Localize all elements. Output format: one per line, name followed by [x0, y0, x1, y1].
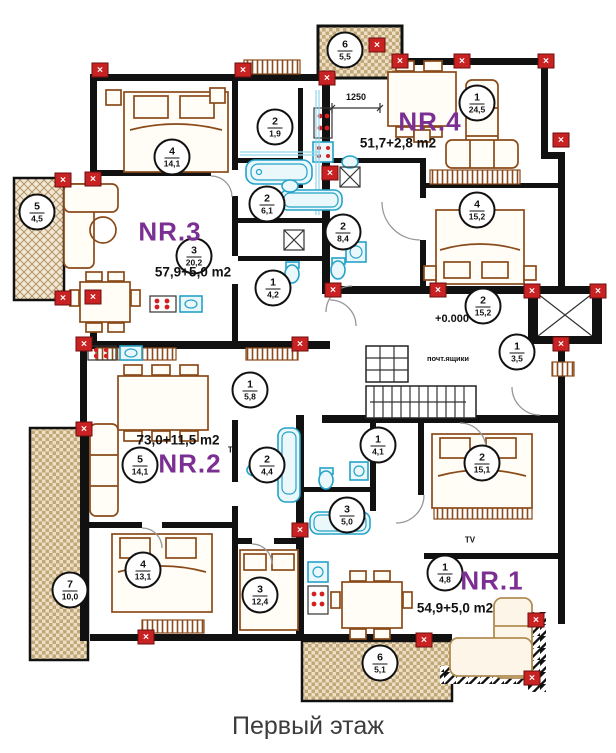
- room-area: 6,1: [261, 205, 273, 215]
- room-number: 1: [265, 276, 281, 289]
- apartment-label-nr2: NR.2: [158, 449, 221, 480]
- wall-marker-icon: ✕: [430, 283, 447, 298]
- dimension-label: 1250: [346, 92, 366, 102]
- dining-nr3: [70, 272, 140, 332]
- apartment-label-nr4: NR.4: [398, 107, 461, 138]
- apartment-label-nr1: NR.1: [460, 566, 523, 597]
- floor-caption: Первый этаж: [0, 712, 616, 741]
- room-area: 14,1: [164, 158, 181, 168]
- wall-marker-icon: ✕: [392, 54, 409, 69]
- room-area: 8,4: [337, 233, 349, 243]
- room-area: 4,4: [261, 466, 273, 476]
- room-marker: 14,1: [360, 427, 397, 464]
- floor-plan-page: 1250 +0.000 почт.ящики NR.3 57,9+5,0 m2 …: [0, 0, 616, 753]
- room-area: 15,1: [474, 464, 491, 474]
- wall-marker-icon: ✕: [590, 284, 607, 299]
- room-marker: 14,8: [427, 555, 464, 592]
- room-marker: 14,2: [255, 270, 292, 307]
- apartment-area-nr3: 57,9+5,0 m2: [155, 265, 231, 280]
- wall-marker-icon: ✕: [138, 630, 155, 645]
- room-marker: 124,5: [459, 85, 496, 122]
- wall-marker-icon: ✕: [76, 422, 93, 437]
- room-number: 5: [132, 453, 148, 466]
- mailboxes-label: почт.ящики: [427, 354, 469, 363]
- room-number: 3: [252, 583, 268, 596]
- wall-marker-icon: ✕: [292, 337, 309, 352]
- sofa-nr3-corner: [64, 184, 118, 268]
- wall-marker-icon: ✕: [55, 173, 72, 188]
- room-area: 3,5: [511, 353, 523, 363]
- room-number: 3: [339, 503, 355, 516]
- floor-plan: 1250 +0.000 почт.ящики NR.3 57,9+5,0 m2 …: [0, 0, 616, 712]
- wall-marker-icon: ✕: [235, 63, 252, 78]
- room-marker: 215,2: [465, 288, 502, 325]
- sofa-nr4-horizontal: [446, 140, 518, 168]
- room-area: 5,8: [244, 391, 256, 401]
- dining-nr1: [331, 571, 412, 639]
- room-number: 1: [469, 91, 485, 104]
- wall-marker-icon: ✕: [325, 283, 342, 298]
- room-area: 4,8: [439, 574, 451, 584]
- kitchen-nr1: [308, 562, 328, 614]
- room-number: 2: [475, 294, 491, 307]
- room-area: 15,2: [475, 307, 492, 317]
- room-marker: 215,1: [464, 445, 501, 482]
- room-area: 12,4: [252, 596, 269, 606]
- room-number: 2: [335, 220, 351, 233]
- room-marker: 28,4: [325, 214, 362, 251]
- room-marker: 21,9: [257, 109, 294, 146]
- wall-marker-icon: ✕: [553, 337, 570, 352]
- room-number: 4: [164, 145, 180, 158]
- room-marker: 26,1: [249, 186, 286, 223]
- room-area: 5,1: [374, 664, 386, 674]
- staircase: [366, 386, 476, 418]
- wall-marker-icon: ✕: [369, 38, 386, 53]
- tv-label: TV: [465, 536, 475, 545]
- room-marker: 65,1: [362, 645, 399, 682]
- room-area: 4,2: [267, 289, 279, 299]
- wall-marker-icon: ✕: [322, 166, 339, 181]
- room-area: 5,5: [339, 51, 351, 61]
- room-marker: 312,4: [242, 577, 279, 614]
- mailboxes: [366, 346, 408, 382]
- room-marker: 54,5: [19, 194, 56, 231]
- apartment-area-nr1: 54,9+5,0 m2: [417, 601, 493, 616]
- apartment-label-nr3: NR.3: [138, 217, 201, 248]
- room-number: 1: [242, 378, 258, 391]
- wall-marker-icon: ✕: [319, 71, 336, 86]
- room-number: 7: [62, 578, 78, 591]
- room-number: 6: [337, 38, 353, 51]
- wall-marker-icon: ✕: [524, 284, 541, 299]
- room-marker: 13,5: [499, 334, 536, 371]
- room-marker: 413,1: [125, 552, 162, 589]
- dimension-line: 1250: [329, 92, 383, 113]
- wall-marker-icon: ✕: [538, 54, 555, 69]
- room-area: 10,0: [62, 591, 79, 601]
- room-number: 5: [29, 200, 45, 213]
- room-number: 1: [370, 433, 386, 446]
- tv-label: TV: [228, 446, 238, 455]
- room-marker: 15,8: [232, 372, 269, 409]
- wall-marker-icon: ✕: [292, 523, 309, 538]
- room-number: 4: [135, 558, 151, 571]
- wall-marker-icon: ✕: [76, 337, 93, 352]
- dining-nr2: [118, 365, 208, 441]
- room-area: 5,0: [341, 516, 353, 526]
- wall-marker-icon: ✕: [524, 671, 541, 686]
- room-number: 1: [437, 561, 453, 574]
- wall-marker-icon: ✕: [85, 172, 102, 187]
- room-marker: 415,2: [459, 192, 496, 229]
- room-marker: 710,0: [52, 572, 89, 609]
- room-area: 4,1: [372, 446, 384, 456]
- room-marker: 65,5: [327, 32, 364, 69]
- wall-marker-icon: ✕: [92, 63, 109, 78]
- terrace-left-large: [30, 428, 88, 660]
- wall-marker-icon: ✕: [454, 54, 471, 69]
- room-marker: 414,1: [154, 139, 191, 176]
- room-marker: 35,0: [329, 497, 366, 534]
- sofa-nr2: [90, 424, 118, 516]
- apartment-area-nr2: 73,0+11,5 m2: [137, 433, 220, 448]
- wall-marker-icon: ✕: [528, 613, 545, 628]
- room-number: 4: [469, 198, 485, 211]
- room-number: 2: [259, 453, 275, 466]
- wall-marker-icon: ✕: [416, 633, 433, 648]
- room-number: 2: [259, 192, 275, 205]
- room-marker: 514,1: [122, 447, 159, 484]
- room-number: 2: [267, 115, 283, 128]
- room-area: 14,1: [132, 466, 149, 476]
- room-area: 4,5: [31, 213, 43, 223]
- room-area: 1,9: [269, 128, 281, 138]
- room-number: 6: [372, 651, 388, 664]
- kitchen-nr3: [150, 296, 202, 312]
- wall-marker-icon: ✕: [553, 133, 570, 148]
- room-marker: 24,4: [249, 447, 286, 484]
- room-number: 1: [509, 340, 525, 353]
- wall-marker-icon: ✕: [85, 290, 102, 305]
- apartment-area-nr4: 51,7+2,8 m2: [360, 136, 436, 151]
- wall-marker-icon: ✕: [55, 291, 72, 306]
- level-mark-label: +0.000: [435, 313, 469, 325]
- room-area: 15,2: [469, 211, 486, 221]
- room-area: 24,5: [469, 104, 486, 114]
- room-number: 2: [474, 451, 490, 464]
- room-area: 13,1: [135, 571, 152, 581]
